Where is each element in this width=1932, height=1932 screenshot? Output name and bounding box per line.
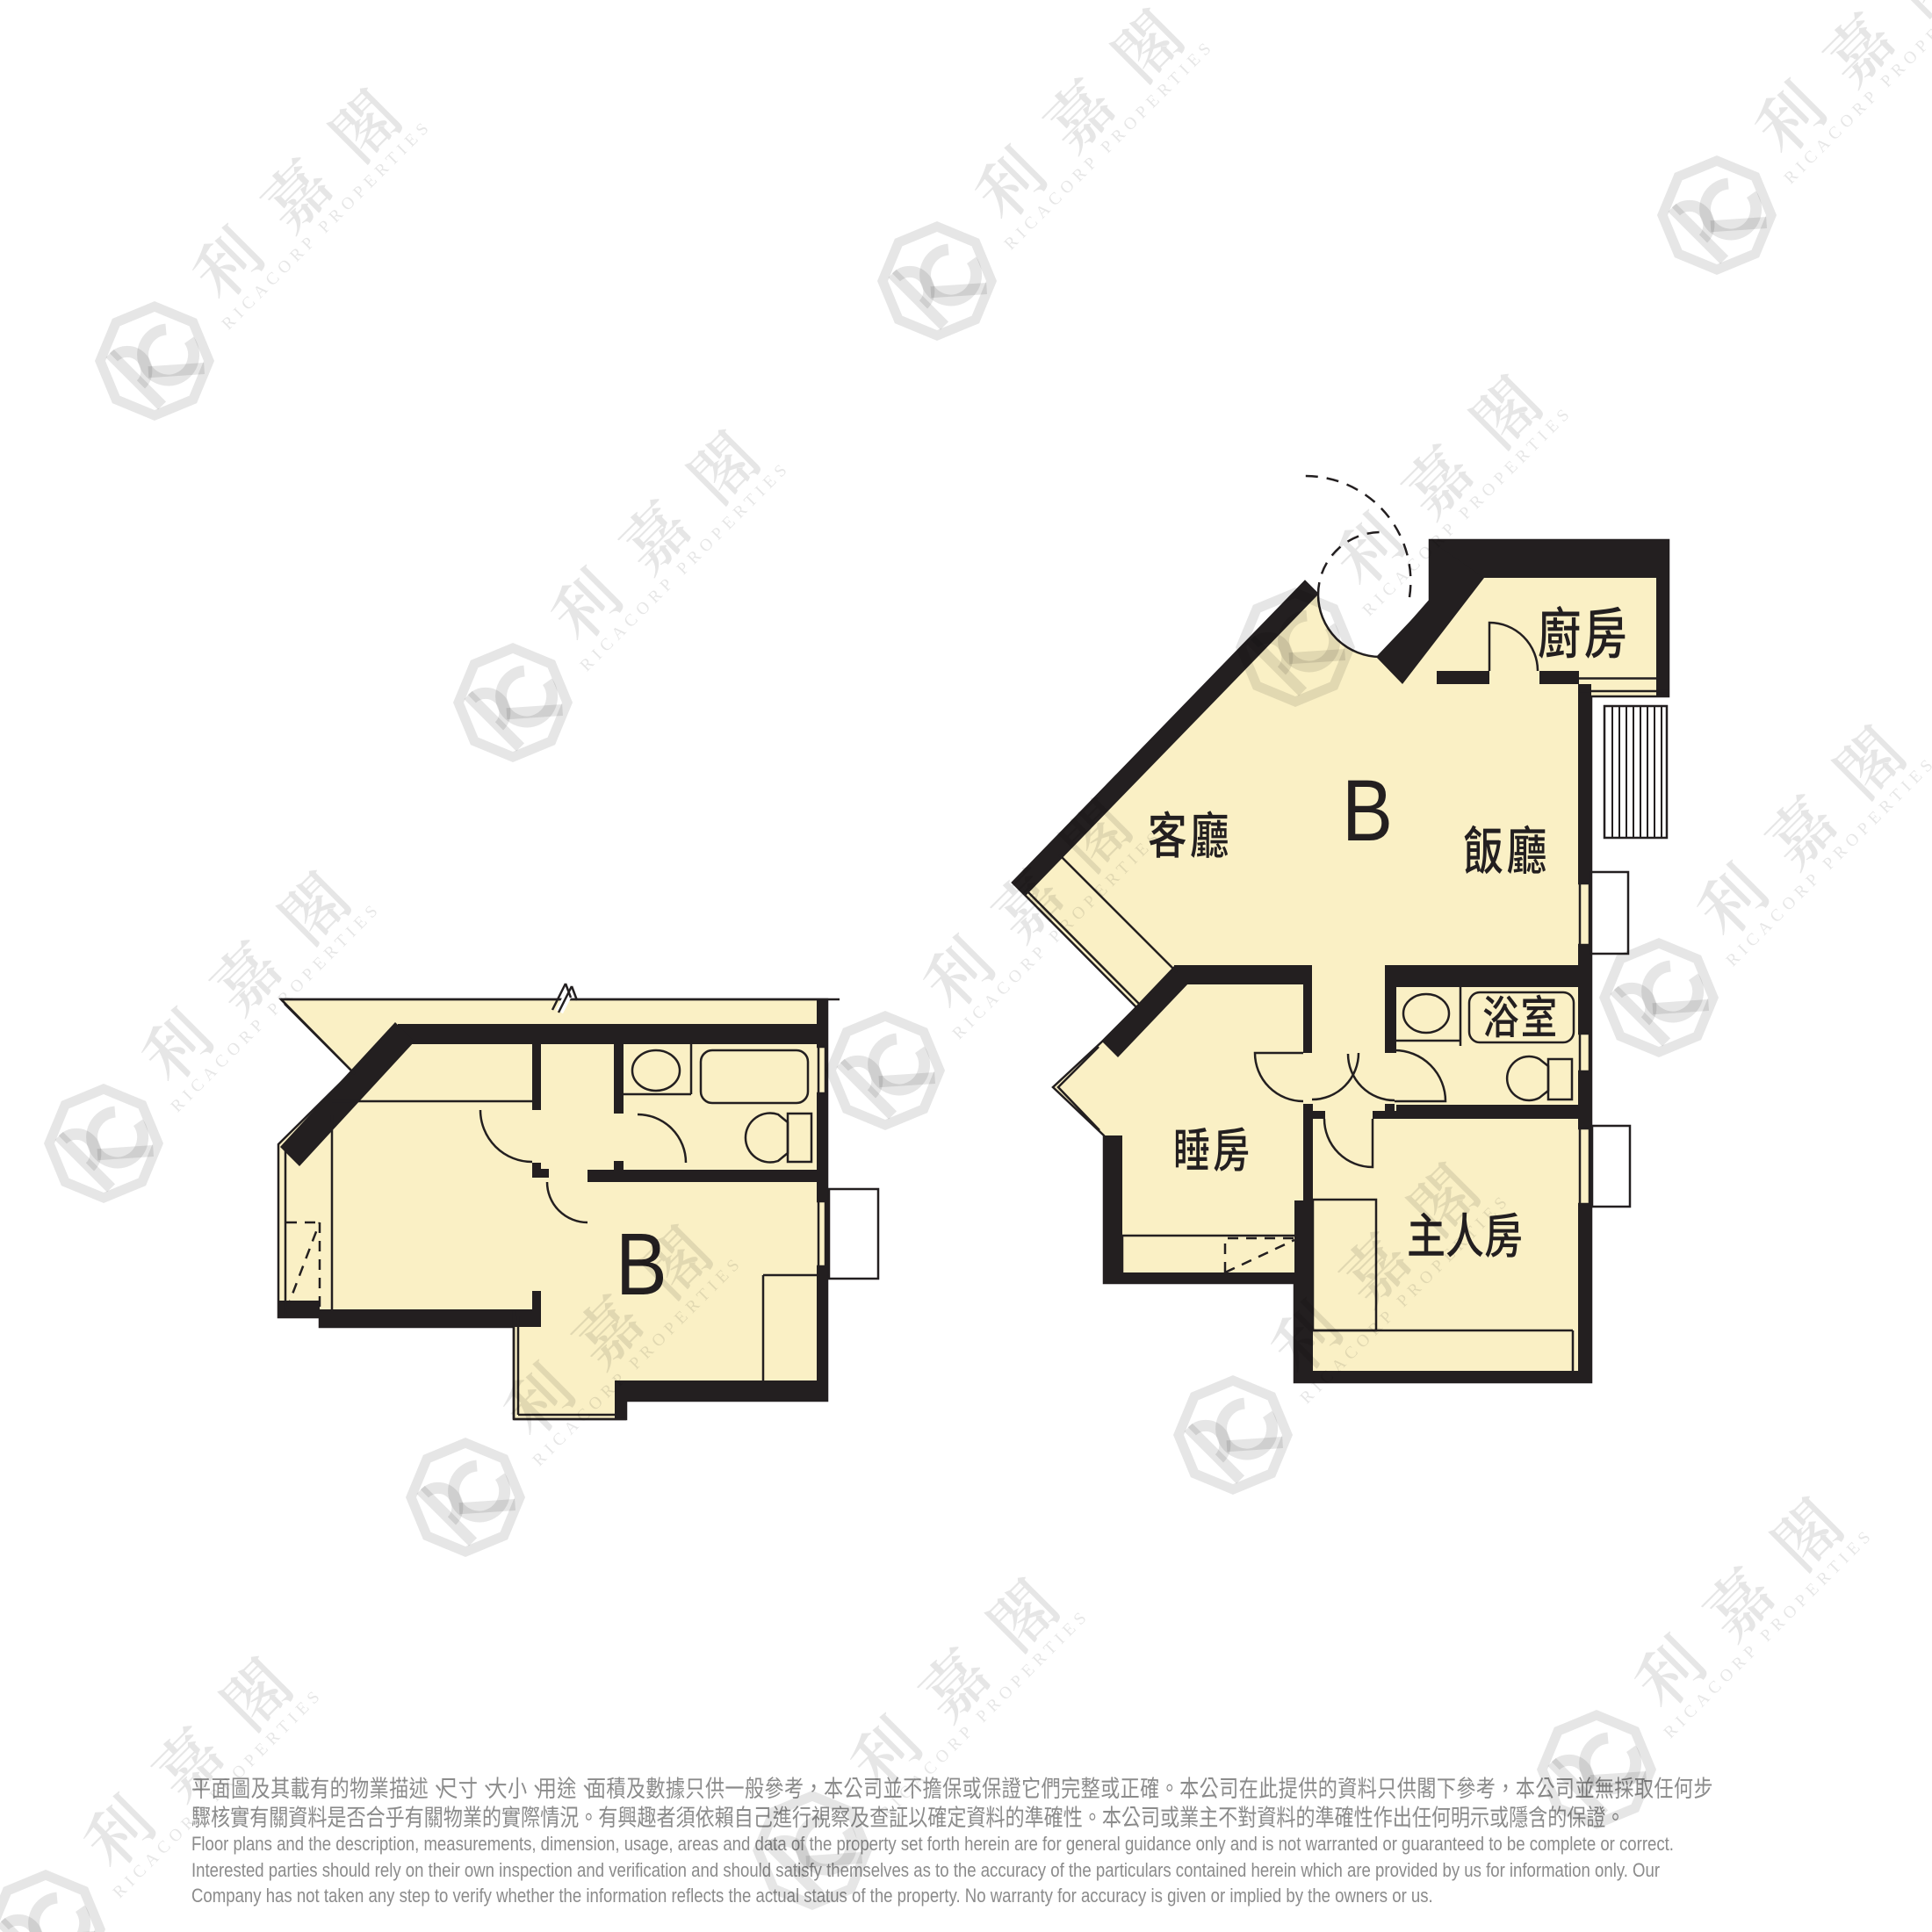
svg-text:B: B <box>1342 762 1393 859</box>
svg-text:Floor plans and the descriptio: Floor plans and the description, measure… <box>191 1835 1674 1856</box>
svg-text:Interested parties should rely: Interested parties should rely on their … <box>191 1861 1660 1882</box>
